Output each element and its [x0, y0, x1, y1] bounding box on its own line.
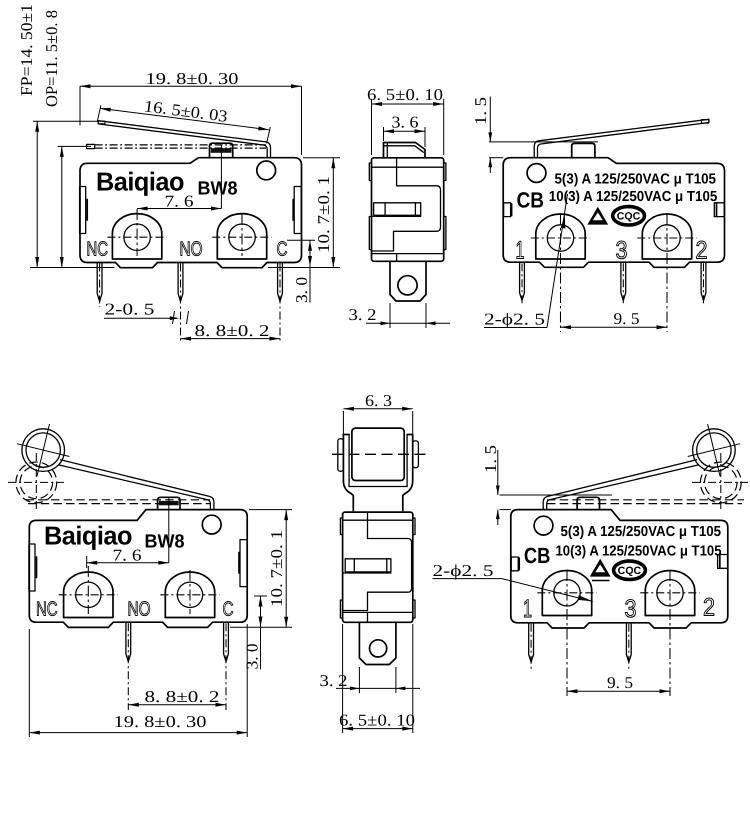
svg-text:CQC: CQC: [618, 565, 642, 577]
svg-text:C: C: [277, 239, 288, 261]
svg-text:FP=14. 50±1: FP=14. 50±1: [17, 4, 36, 96]
svg-text:9. 5: 9. 5: [607, 673, 633, 692]
svg-text:10. 7±0. 1: 10. 7±0. 1: [267, 530, 286, 607]
svg-text:NC: NC: [87, 239, 109, 261]
svg-text:BW8: BW8: [145, 532, 185, 553]
svg-text:2-ϕ2. 5: 2-ϕ2. 5: [484, 310, 545, 329]
svg-text:3. 6: 3. 6: [392, 113, 419, 132]
svg-text:1: 1: [523, 595, 532, 623]
svg-text:NC: NC: [36, 599, 58, 621]
svg-text:3: 3: [616, 237, 628, 265]
svg-text:CB: CB: [517, 188, 545, 213]
svg-text:2-0. 5: 2-0. 5: [105, 300, 155, 319]
svg-text:9. 5: 9. 5: [614, 309, 640, 328]
svg-text:10. 7±0. 1: 10. 7±0. 1: [314, 176, 333, 253]
svg-text:6. 5±0. 10: 6. 5±0. 10: [367, 85, 443, 104]
svg-text:5(3) A 125/250VAC μ T105: 5(3) A 125/250VAC μ T105: [561, 524, 722, 540]
svg-text:10(3) A 125/250VAC μ T105: 10(3) A 125/250VAC μ T105: [549, 189, 718, 205]
svg-text:CB: CB: [524, 543, 551, 568]
svg-text:5(3) A 125/250VAC μ T105: 5(3) A 125/250VAC μ T105: [555, 172, 717, 188]
svg-text:3. 0: 3. 0: [243, 643, 262, 669]
svg-text:10(3) A 125/250VAC μ T105: 10(3) A 125/250VAC μ T105: [556, 544, 722, 560]
svg-text:6. 3: 6. 3: [365, 391, 392, 410]
svg-text:NO: NO: [128, 599, 151, 621]
svg-text:19. 8±0. 30: 19. 8±0. 30: [114, 712, 207, 731]
svg-text:3. 0: 3. 0: [292, 277, 311, 303]
svg-text:2: 2: [696, 237, 708, 265]
svg-text:8. 8±0. 2: 8. 8±0. 2: [195, 321, 270, 340]
svg-text:2: 2: [703, 594, 715, 622]
svg-text:1. 5: 1. 5: [481, 445, 500, 473]
svg-text:BW8: BW8: [198, 179, 238, 200]
svg-text:1. 5: 1. 5: [471, 97, 490, 125]
svg-text:3: 3: [625, 595, 637, 623]
svg-text:3. 2: 3. 2: [349, 305, 377, 324]
svg-text:NO: NO: [180, 239, 203, 261]
svg-text:Baiqiao: Baiqiao: [96, 167, 184, 197]
svg-text:Baiqiao: Baiqiao: [44, 521, 132, 551]
svg-text:OP=11. 5±0. 8: OP=11. 5±0. 8: [42, 10, 61, 107]
svg-text:1: 1: [516, 237, 525, 265]
svg-text:3. 2: 3. 2: [320, 671, 348, 690]
svg-text:19. 8±0. 30: 19. 8±0. 30: [146, 69, 239, 88]
svg-text:6. 5±0. 10: 6. 5±0. 10: [339, 711, 415, 730]
svg-text:CQC: CQC: [617, 211, 641, 223]
svg-text:8. 8±0. 2: 8. 8±0. 2: [145, 687, 220, 706]
svg-text:2-ϕ2. 5: 2-ϕ2. 5: [433, 561, 494, 580]
svg-text:C: C: [223, 599, 234, 621]
